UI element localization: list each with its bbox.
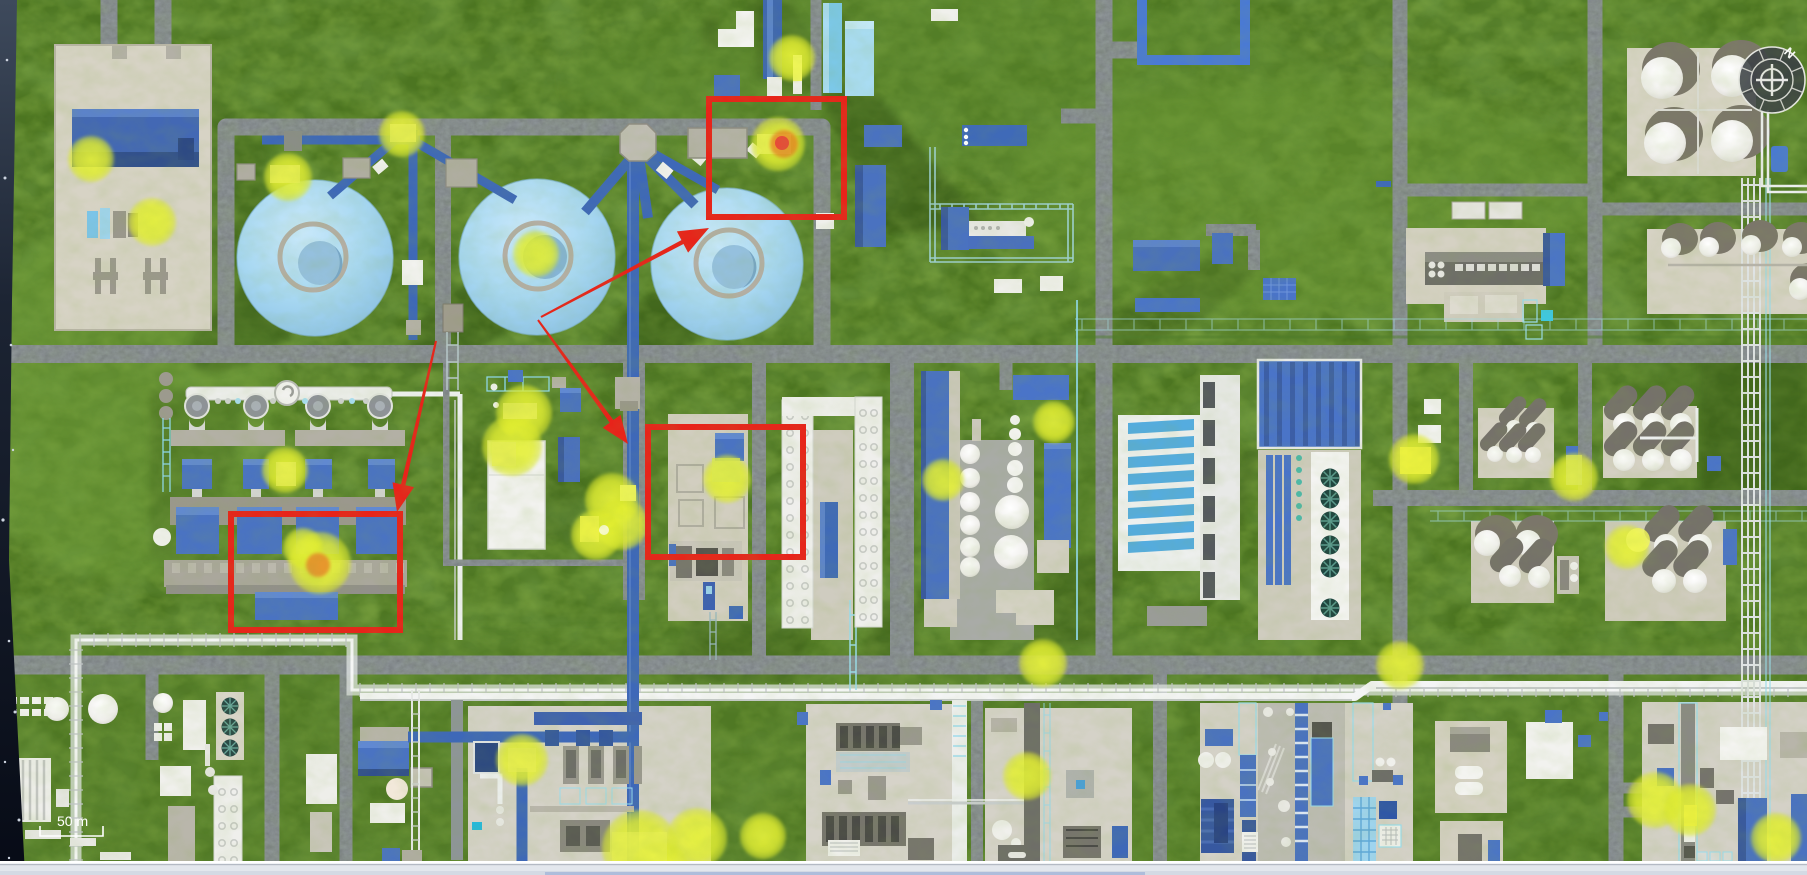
svg-text:50 m: 50 m — [57, 813, 88, 829]
